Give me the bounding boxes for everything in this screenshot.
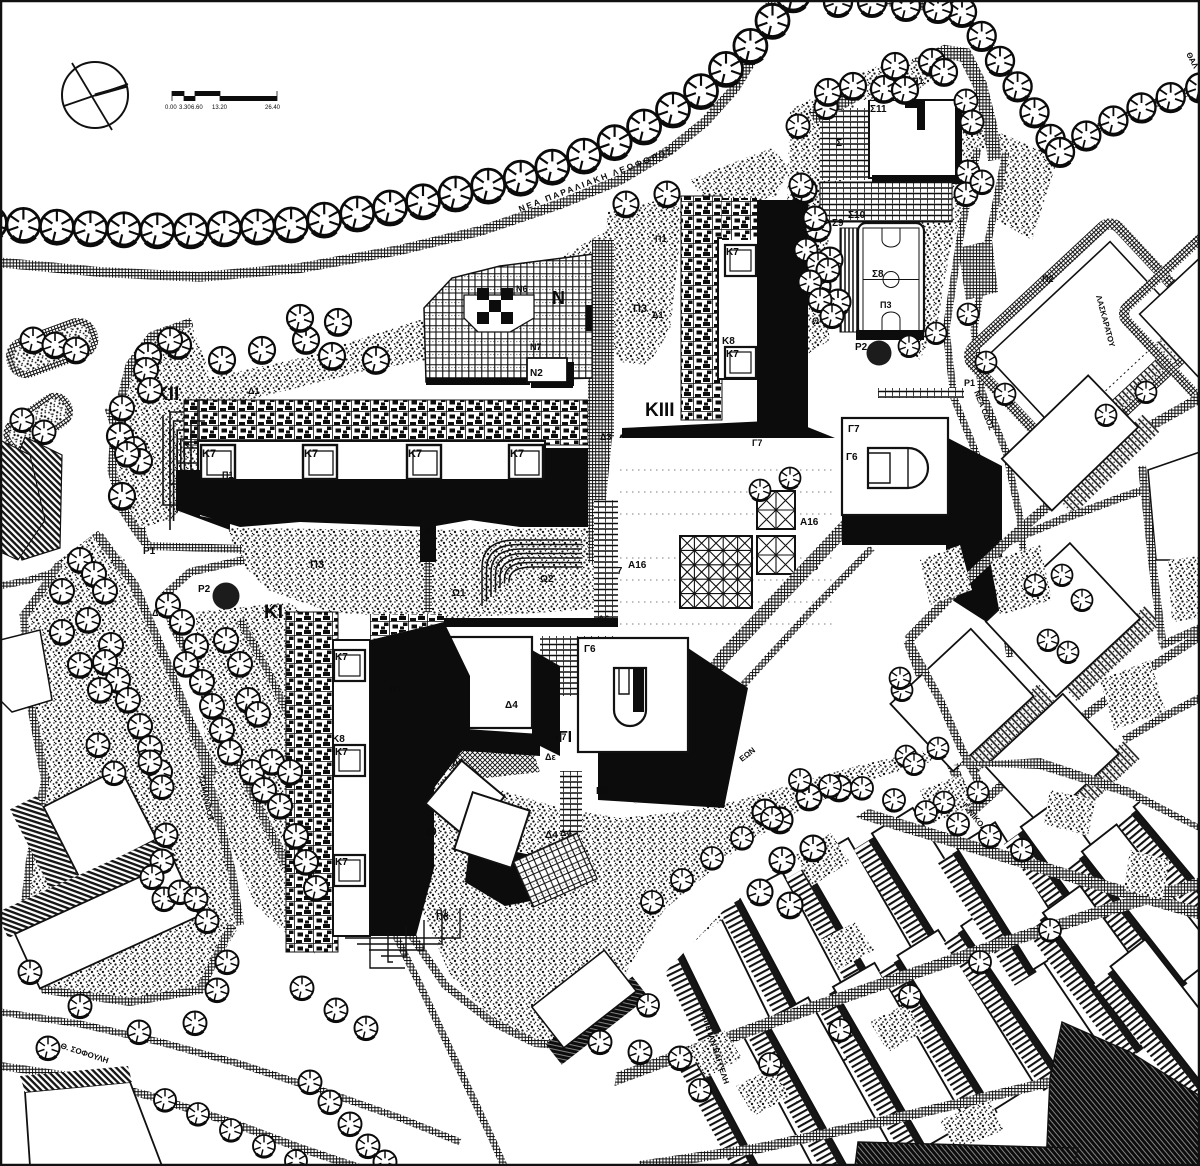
- svg-text:N: N: [552, 288, 565, 308]
- svg-text:Γ6: Γ6: [584, 644, 596, 655]
- svg-text:N6: N6: [516, 284, 528, 294]
- svg-text:Σ11: Σ11: [870, 104, 887, 115]
- svg-text:Σ10: Σ10: [848, 210, 866, 221]
- svg-text:K7: K7: [510, 448, 524, 460]
- svg-text:N2: N2: [530, 368, 543, 379]
- svg-text:26.40: 26.40: [265, 105, 281, 111]
- svg-text:K7: K7: [304, 448, 318, 460]
- svg-text:A16: A16: [628, 560, 647, 571]
- svg-text:13.20: 13.20: [212, 105, 228, 111]
- svg-text:0.00: 0.00: [165, 105, 177, 111]
- svg-text:K7: K7: [726, 349, 739, 360]
- svg-text:Δ6: Δ6: [424, 526, 435, 536]
- svg-text:Π1: Π1: [436, 908, 448, 918]
- svg-text:Γ7: Γ7: [752, 438, 762, 448]
- svg-text:A16: A16: [800, 517, 819, 528]
- svg-text:P2: P2: [198, 584, 211, 595]
- svg-text:K7: K7: [335, 857, 348, 868]
- svg-text:Σ8: Σ8: [872, 269, 884, 280]
- svg-text:KIII: KIII: [645, 400, 675, 421]
- svg-text:Γ6: Γ6: [846, 452, 858, 463]
- svg-text:Π3: Π3: [310, 559, 324, 571]
- svg-text:Π1: Π1: [655, 234, 667, 244]
- svg-text:Γ7: Γ7: [556, 732, 566, 742]
- svg-text:P1: P1: [143, 546, 156, 557]
- svg-text:Δ3: Δ3: [600, 432, 611, 442]
- svg-text:K7: K7: [202, 448, 216, 460]
- svg-text:3.30: 3.30: [179, 105, 191, 111]
- svg-text:Π3: Π3: [880, 300, 892, 310]
- svg-text:Δ6: Δ6: [598, 614, 609, 624]
- svg-text:Δ4: Δ4: [505, 700, 518, 711]
- svg-text:Δ1: Δ1: [652, 310, 663, 320]
- svg-text:Γ7: Γ7: [848, 424, 860, 435]
- svg-text:K7: K7: [335, 652, 348, 663]
- svg-text:Δ4: Δ4: [545, 830, 558, 841]
- svg-text:Δε: Δε: [545, 752, 556, 762]
- svg-text:K7: K7: [335, 747, 348, 758]
- svg-text:Δ1: Δ1: [248, 386, 259, 396]
- svg-text:N7: N7: [530, 342, 542, 352]
- svg-text:Σ: Σ: [836, 138, 842, 149]
- svg-text:KI: KI: [264, 602, 283, 623]
- svg-text:K7: K7: [408, 448, 422, 460]
- svg-text:Σ9: Σ9: [832, 218, 844, 229]
- svg-text:Ω2: Ω2: [540, 574, 554, 585]
- svg-text:Θ: Θ: [426, 823, 437, 839]
- svg-text:Π1: Π1: [222, 470, 234, 480]
- svg-text:K8: K8: [332, 734, 345, 745]
- svg-text:P2: P2: [855, 342, 868, 353]
- svg-text:Π2: Π2: [1042, 274, 1054, 284]
- svg-text:P1: P1: [964, 378, 975, 388]
- svg-text:K8: K8: [722, 336, 735, 347]
- svg-text:Π2: Π2: [596, 786, 609, 797]
- svg-text:Π1: Π1: [390, 684, 402, 694]
- svg-text:K7: K7: [726, 247, 739, 258]
- svg-text:Ω1: Ω1: [452, 588, 466, 599]
- svg-text:6.60: 6.60: [191, 105, 203, 111]
- svg-text:Π3: Π3: [633, 303, 647, 315]
- svg-text:Δ4: Δ4: [560, 828, 571, 838]
